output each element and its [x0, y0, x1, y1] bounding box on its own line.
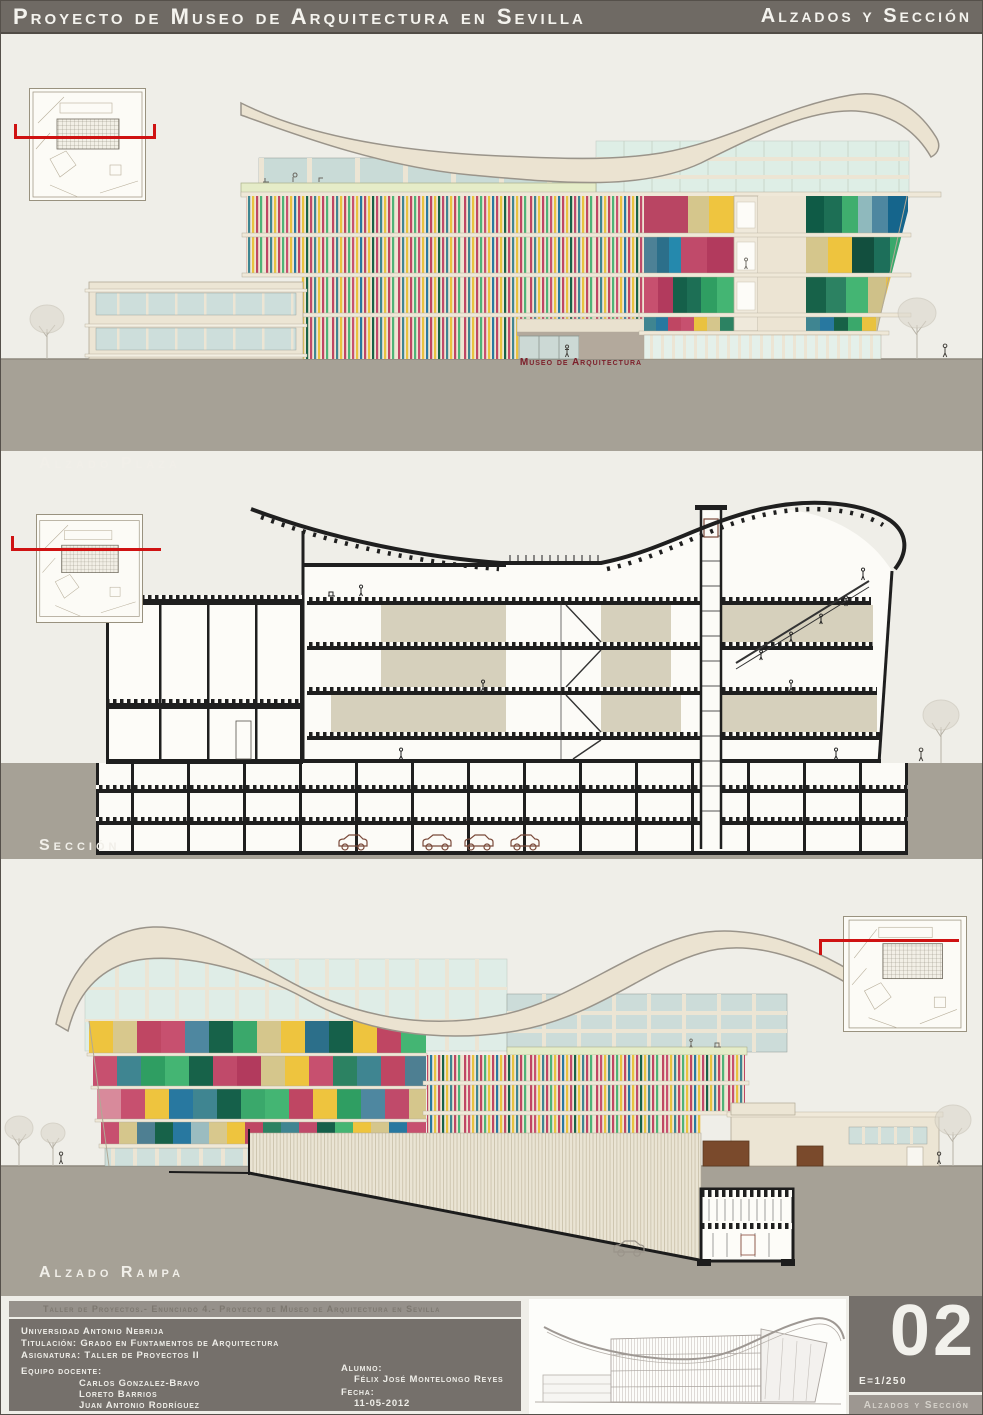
person-figure	[919, 748, 923, 761]
team-member: Loreto Barrios	[79, 1389, 158, 1400]
title-block: Universidad Antonio Nebrija Titulación: …	[9, 1319, 521, 1411]
panel-seccion: Sección	[1, 451, 983, 859]
team-member: Carlos Gonzalez-Bravo	[79, 1378, 200, 1389]
university: Universidad Antonio Nebrija	[21, 1326, 164, 1337]
site-plan-drawing	[844, 917, 966, 1031]
section-cut-tick	[11, 536, 14, 548]
ground-plaza	[1, 359, 983, 451]
panel-alzado-rampa: Alzado Rampa	[1, 859, 983, 1296]
team-member: Juan Antonio Rodríguez	[79, 1400, 200, 1411]
alzado-rampa-drawing	[1, 859, 983, 1296]
panel-label-plaza: Alzado Plaza	[39, 455, 181, 473]
board-section-label: Alzados y Sección	[761, 5, 972, 28]
team-label: Equipo docente:	[21, 1366, 102, 1377]
sheet-scale: E=1/250	[859, 1376, 907, 1387]
person-figure	[943, 344, 947, 357]
site-plan-inset	[843, 916, 967, 1032]
person-figure	[59, 1152, 62, 1164]
panel-label-rampa: Alzado Rampa	[39, 1264, 184, 1282]
section-cut-line	[14, 136, 156, 139]
panel-alzado-plaza: Museo de Arquitectura Alzado Plaza	[1, 37, 983, 451]
tree	[30, 305, 64, 359]
date-value: 11-05-2012	[354, 1398, 410, 1409]
blank-wall	[758, 196, 806, 331]
basement-parking	[96, 763, 908, 855]
site-plan-drawing	[30, 89, 145, 200]
alzado-plaza-drawing	[1, 37, 983, 451]
tree	[5, 1116, 33, 1166]
site-plan-drawing	[37, 515, 142, 622]
sheet-caption: Alzados y Sección	[849, 1395, 983, 1415]
stair-tower	[734, 196, 758, 331]
student-name: Félix José Montelongo Reyes	[354, 1374, 504, 1385]
section-cut-line	[819, 939, 959, 942]
board-title: Proyecto de Museo de Arquitectura en Sev…	[13, 4, 586, 30]
site-plan-inset	[29, 88, 146, 201]
section-cut-tick	[819, 939, 822, 955]
annex-right	[727, 1103, 943, 1166]
section-cut-tick	[14, 124, 17, 136]
site-plan-inset	[36, 514, 143, 623]
section-cut-line	[11, 548, 161, 551]
section-cut-tick	[153, 124, 156, 136]
subject: Asignatura: Taller de Proyectos II	[21, 1350, 200, 1361]
colored-panels-right-column	[806, 196, 908, 331]
date-label: Fecha:	[341, 1387, 375, 1398]
panel-label-seccion: Sección	[39, 837, 120, 855]
student-label: Alumno:	[341, 1363, 382, 1374]
colored-panels-left-column	[644, 196, 734, 331]
project-strip: Taller de Proyectos.- Enunciado 4.- Proy…	[9, 1301, 521, 1317]
elevator-shaft	[695, 505, 727, 849]
degree: Titulación: Grado en Funtamentos de Arqu…	[21, 1338, 279, 1349]
sheet-number-block: 02 E=1/250	[849, 1296, 983, 1392]
seccion-drawing	[1, 451, 983, 859]
entrance	[517, 319, 645, 359]
presentation-board: Proyecto de Museo de Arquitectura en Sev…	[0, 0, 983, 1415]
striped-facade	[423, 1055, 749, 1133]
annex-left	[85, 282, 307, 359]
concept-sketch	[529, 1299, 846, 1415]
tree	[923, 700, 959, 763]
tree	[935, 1105, 971, 1166]
stair-section-cut	[697, 1189, 795, 1266]
sheet-number: 02	[890, 1290, 976, 1372]
atrium	[506, 555, 601, 763]
concept-sketch-drawing	[529, 1299, 846, 1415]
tree	[898, 298, 936, 359]
colonnade	[644, 335, 881, 359]
title-bar: Proyecto de Museo de Arquitectura en Sev…	[1, 1, 983, 34]
entrance-sign: Museo de Arquitectura	[517, 356, 645, 369]
